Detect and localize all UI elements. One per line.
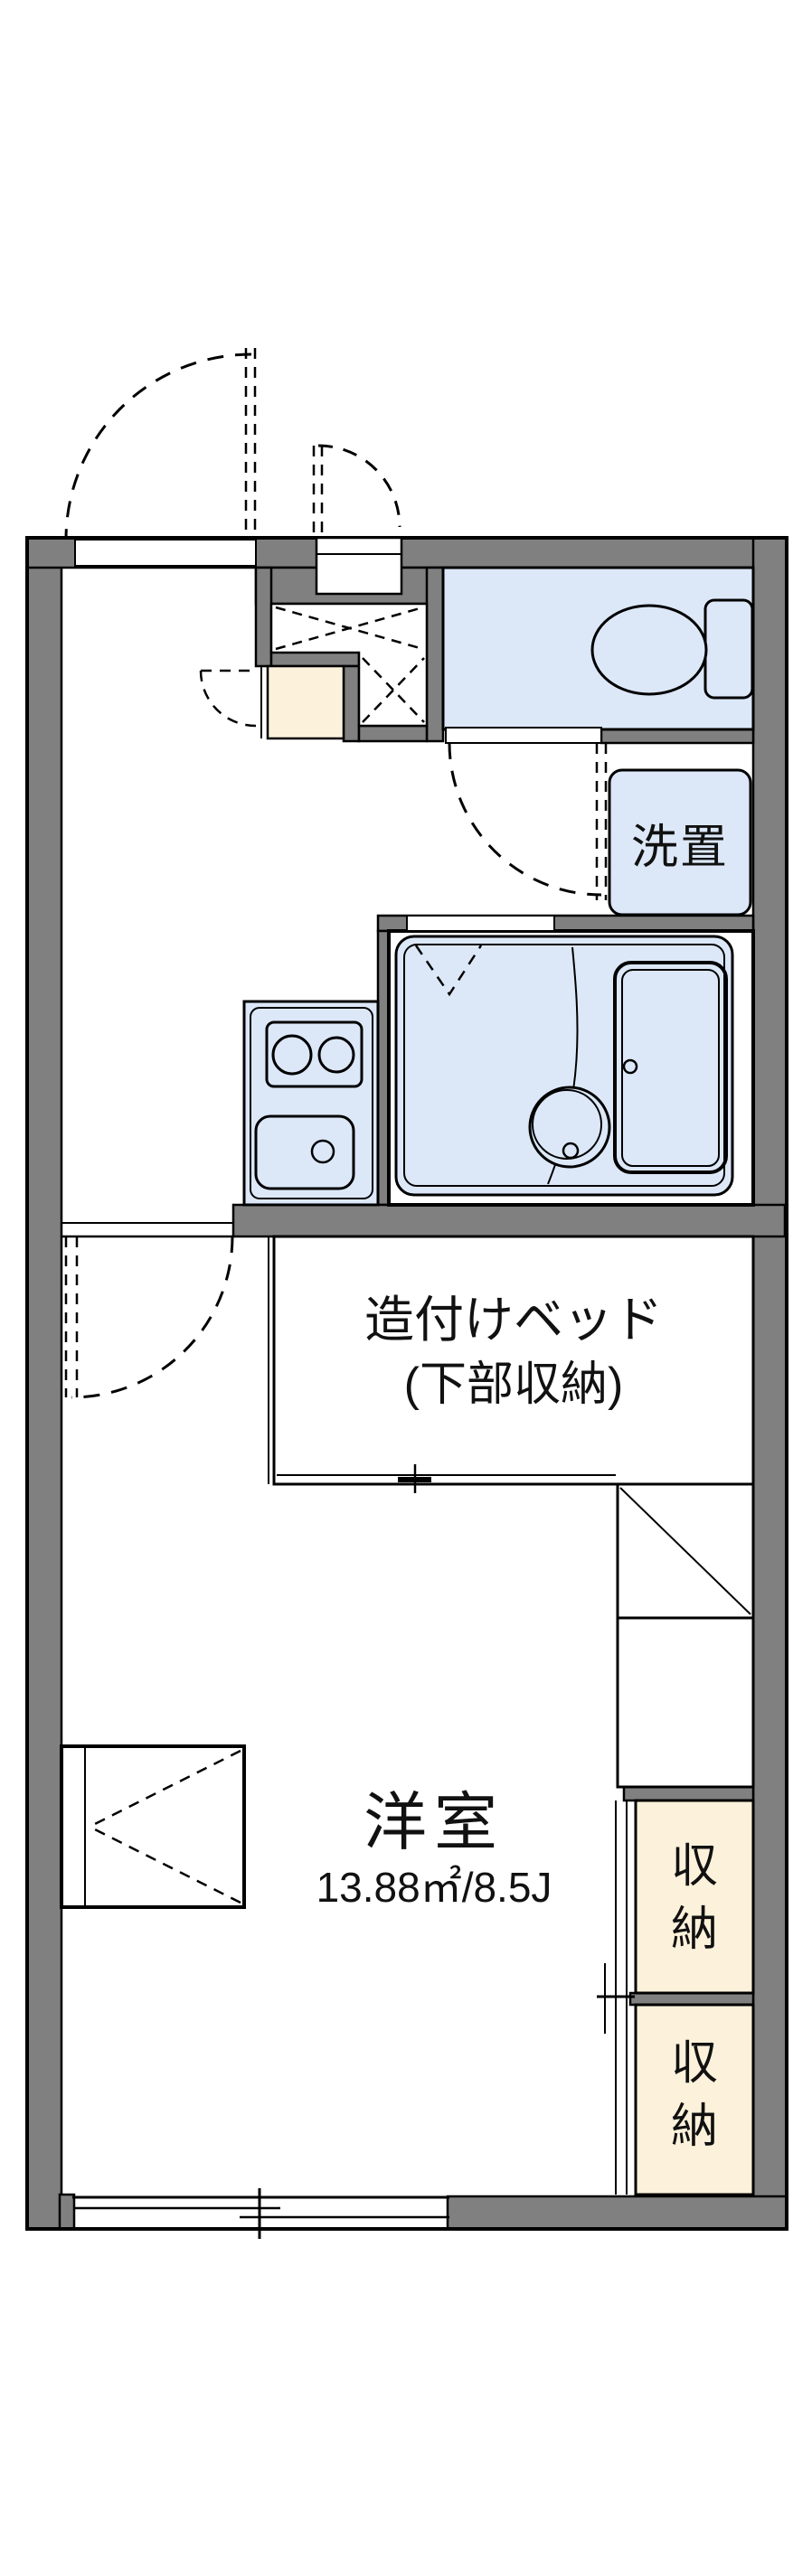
refrigerator-space	[618, 1484, 753, 1618]
wall-right	[753, 538, 787, 2229]
bed-label: 造付けベッド (下部収納)	[274, 1287, 753, 1417]
bathroom-unit	[389, 916, 753, 1205]
wall-bottom-left-block	[60, 2195, 74, 2229]
kitchen-sink	[256, 1116, 354, 1189]
room-door-swing-arc	[71, 1236, 232, 1397]
room-door-leaf	[66, 1236, 77, 1397]
room-size-label: 13.88㎡/8.5J	[208, 1855, 660, 1914]
wall-entry-bottom	[359, 726, 427, 741]
floorplan: 洗置 造付けベッド (下部収納) 洋室 13.88㎡/8.5J 収納 収納	[0, 0, 812, 2576]
storage-lower-label: 収納	[663, 2032, 726, 2158]
kitchen-counter	[244, 1001, 378, 1205]
toilet-bowl	[592, 606, 706, 694]
wash-basin	[530, 1087, 609, 1167]
entrance-door	[75, 540, 256, 566]
wall-left	[27, 538, 61, 2229]
storage-upper-label: 収納	[663, 1835, 726, 1961]
laundry-label: 洗置	[609, 770, 751, 915]
entrance-inner-swing	[201, 671, 256, 726]
wall-stub-above-closet	[624, 1787, 753, 1800]
toilet-door-leaf	[597, 743, 606, 900]
wall-closet-divider	[630, 1993, 753, 2005]
toilet-tank	[705, 600, 752, 698]
entrance-door-swing	[66, 348, 255, 540]
toilet-door	[446, 728, 601, 743]
room-door	[61, 1223, 233, 1397]
wall-entry-right	[427, 568, 443, 741]
entrance-step	[268, 666, 344, 738]
toilet-door-swing-arc	[449, 743, 601, 895]
wall-bed-top	[233, 1205, 785, 1236]
bed-label-line1: 造付けベッド	[274, 1287, 753, 1352]
shelf-space	[618, 1618, 753, 1787]
room-name-label: 洋室	[253, 1772, 615, 1863]
bathroom-door	[407, 916, 554, 931]
two-burner-stove	[267, 1022, 362, 1086]
utility-door	[316, 538, 401, 594]
sliding-window	[72, 2188, 449, 2239]
wall-bottom	[448, 2196, 787, 2229]
utility-door-swing	[314, 446, 400, 533]
wall-entry-mid	[344, 666, 359, 741]
wall-entry-left	[256, 568, 271, 666]
bed-label-line2: (下部収納)	[274, 1352, 753, 1417]
